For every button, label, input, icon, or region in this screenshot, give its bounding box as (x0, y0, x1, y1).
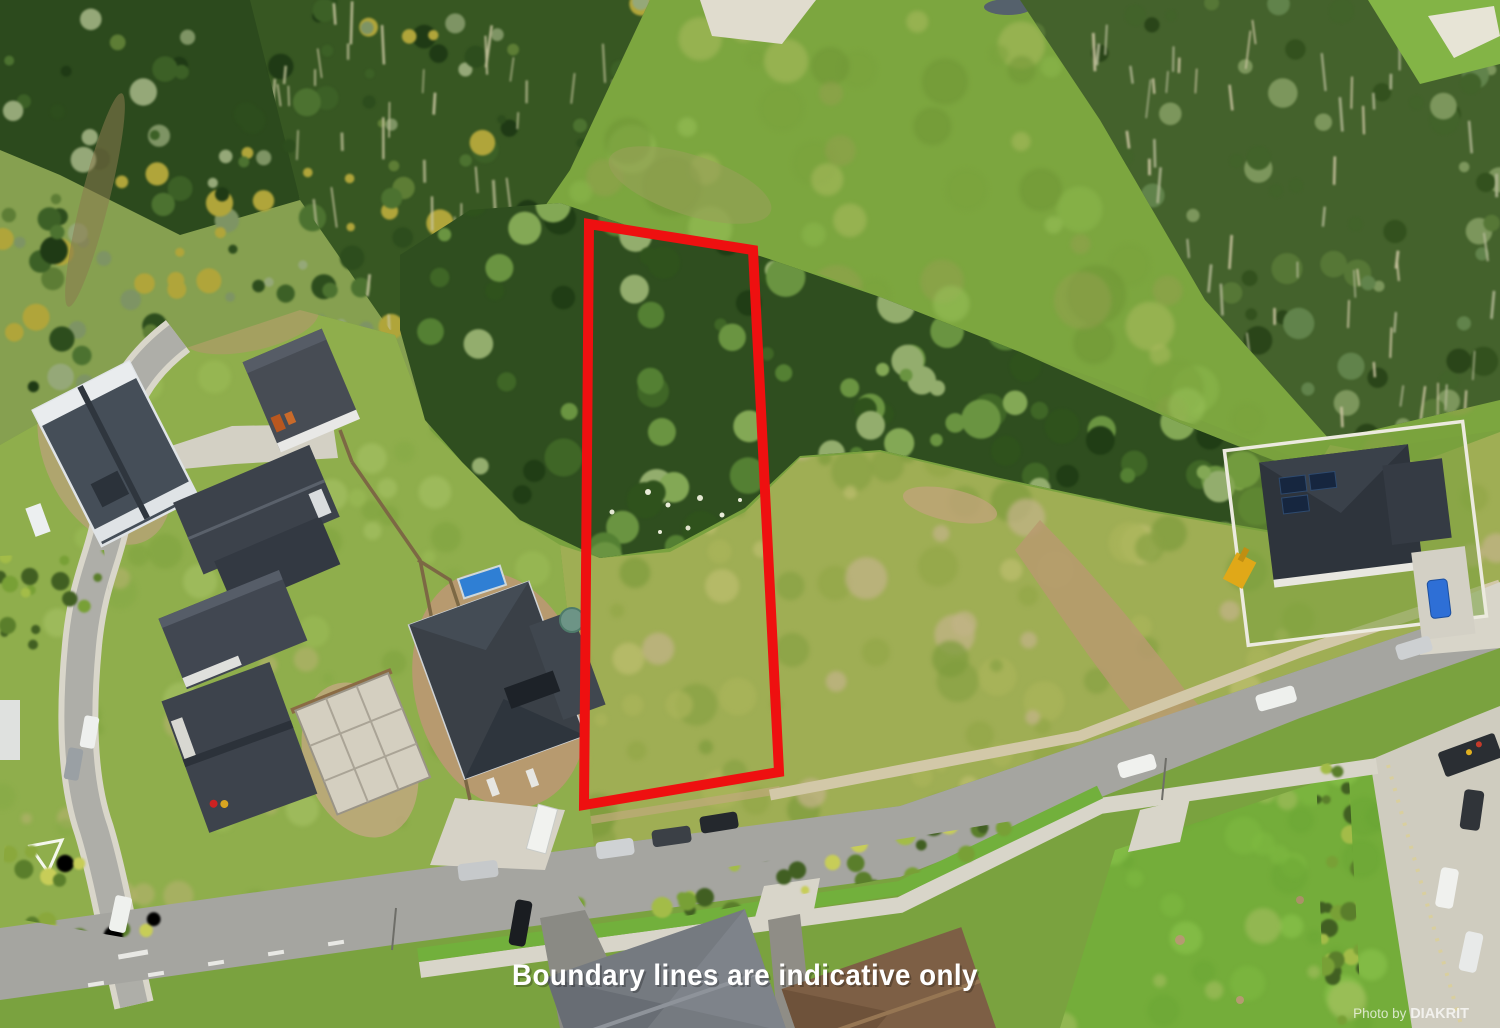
dirt-spot (1236, 996, 1244, 1004)
aerial-photo-canvas: Boundary lines are indicative only Bound… (0, 0, 1500, 1028)
water-tank (560, 608, 584, 632)
watermark-prefix: Photo by (1353, 1006, 1410, 1021)
car-blue (1427, 579, 1451, 619)
watermark: Photo by DIAKRIT (1353, 1006, 1469, 1022)
watermark-brand: DIAKRIT (1410, 1006, 1469, 1022)
truck-left-edge (0, 700, 20, 760)
dirt-spot (1175, 935, 1185, 945)
house-right (1223, 421, 1489, 661)
aerial-photo: Boundary lines are indicative only Bound… (0, 0, 1500, 1028)
disclaimer-text: Boundary lines are indicative only (512, 959, 978, 992)
dirt-spot (1296, 896, 1304, 904)
